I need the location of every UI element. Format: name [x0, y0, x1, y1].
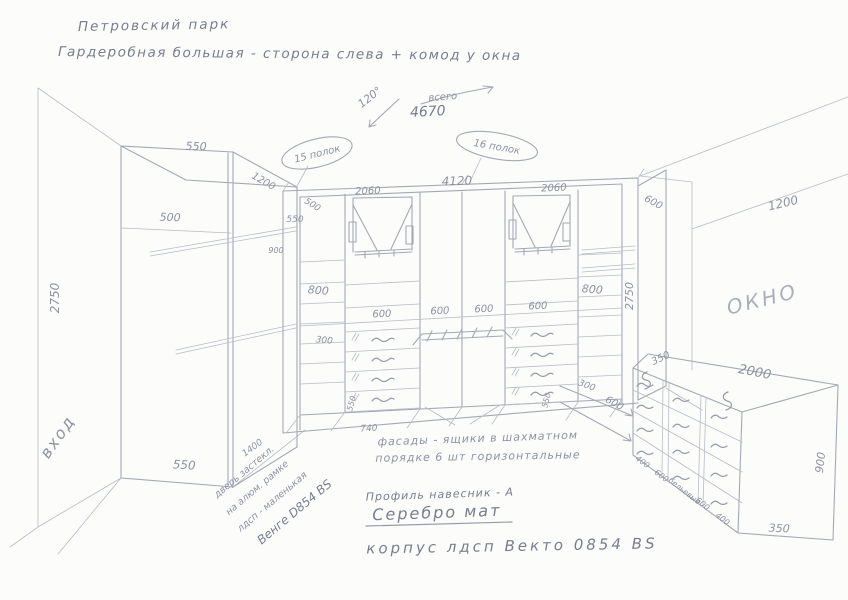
- room-lines: [10, 88, 848, 554]
- wu-col4: 600: [528, 301, 547, 313]
- wu-floor-depth: 740: [360, 424, 378, 435]
- hanging-rods-right: [582, 246, 635, 272]
- wu-col2: 600: [430, 306, 449, 318]
- wu-left-col-gap: 800: [307, 283, 329, 298]
- plinth-lines: [287, 399, 622, 432]
- wu-total-width: 4120: [441, 173, 472, 188]
- note-fronts-line1: фасады - ящики в шахматном: [377, 429, 578, 449]
- entrance-label: вход: [36, 412, 79, 462]
- note-finish: Серебро мат: [372, 501, 502, 524]
- wu-col3: 600: [474, 304, 493, 316]
- lw-top-depth: 550: [185, 140, 206, 154]
- pantograph-right: [509, 195, 570, 255]
- wu-height: 2750: [623, 282, 636, 310]
- dr-height: 900: [813, 451, 828, 473]
- lw-bottom-width: 550: [172, 457, 196, 472]
- wu-right-return-depth: 600: [642, 193, 664, 212]
- wu-right-col-gap: 800: [581, 282, 603, 297]
- window-label: ОКНО: [724, 279, 800, 320]
- dresser-outline: [633, 354, 838, 540]
- angle-label: 120°: [355, 84, 384, 111]
- lw-height: 2750: [48, 282, 62, 313]
- wall-unit: [283, 169, 666, 433]
- wu-left-shelf-gap: 300: [315, 335, 333, 346]
- total-label: всего: [428, 91, 458, 104]
- wu-return-diag: 500: [302, 197, 322, 215]
- title-line2: Гардеробная большая - сторона слева + ко…: [58, 44, 522, 64]
- right-oval-label: 16 полок: [473, 138, 521, 157]
- wardrobe-sketch: Петровский парк Гардеробная большая - ст…: [0, 0, 848, 600]
- wu-rod-mark: 900: [268, 246, 283, 255]
- left-shelf-column: [300, 260, 345, 384]
- total-value: 4670: [410, 103, 447, 121]
- pantograph-left: [349, 197, 413, 258]
- dr-top-depth: 350: [650, 350, 672, 368]
- wu-return-depth: 550: [286, 215, 303, 225]
- sketch-paper: Петровский парк Гардеробная большая - ст…: [0, 0, 848, 600]
- wu-plinth-right: 550: [540, 392, 553, 409]
- lw-shelf-depth: 500: [159, 211, 180, 225]
- wu-col1: 600: [372, 309, 391, 321]
- dr-bottom-label-4: 400: [714, 511, 732, 528]
- title-line1: Петровский парк: [78, 16, 231, 35]
- wu-right-section: 2060: [541, 183, 567, 195]
- note-fronts-line2: порядке 6 шт горизонтальные: [375, 448, 580, 465]
- dr-length: 2000: [737, 362, 772, 383]
- wu-plinth-left: 550: [345, 395, 358, 412]
- note-body: корпус лдсп Векто 0854 BS: [366, 534, 658, 557]
- dr-bottom-depth: 350: [768, 521, 790, 535]
- left-wardrobe: [121, 146, 297, 487]
- wu-left-section: 2060: [355, 186, 381, 198]
- window-wall-width: 1200: [767, 193, 800, 214]
- dresser: [633, 354, 838, 540]
- counter-shelf: [300, 278, 622, 326]
- dr-bottom-label-3: 600: [694, 496, 712, 513]
- dr-bottom-label-0: 400: [634, 454, 652, 470]
- wu-dresser-gap-small: 300: [577, 378, 597, 393]
- left-wardrobe-outline: [121, 146, 297, 487]
